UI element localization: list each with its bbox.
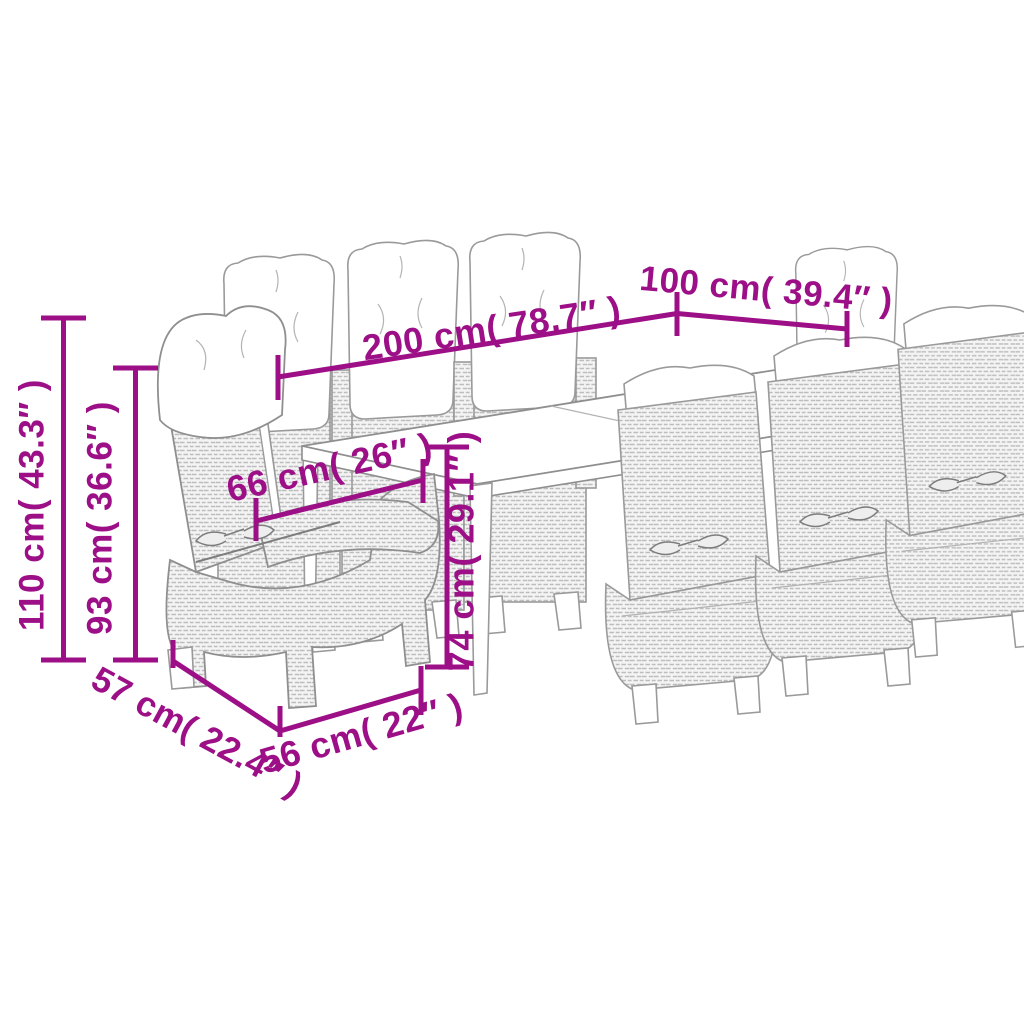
dining-set-illustration: 200 cm( 78.7″ ) 100 cm( 39.4″ ) 66 cm( 2… bbox=[0, 0, 1024, 1024]
dim-label-backrest-height: 93 cm( 36.6″ ) bbox=[80, 401, 119, 635]
dim-label-chair-width: 56 cm( 22″ ) bbox=[255, 685, 468, 782]
chair-end-near bbox=[886, 306, 1024, 657]
dim-label-table-height: 74 cm( 29.1″ ) bbox=[441, 431, 482, 671]
chair-back-cushion bbox=[158, 306, 286, 438]
chair-near-left bbox=[606, 365, 777, 724]
dim-backrest-height bbox=[113, 368, 158, 660]
dimension-diagram: 200 cm( 78.7″ ) 100 cm( 39.4″ ) 66 cm( 2… bbox=[0, 0, 1024, 1024]
dim-label-chair-height: 110 cm( 43.3″ ) bbox=[12, 379, 51, 631]
